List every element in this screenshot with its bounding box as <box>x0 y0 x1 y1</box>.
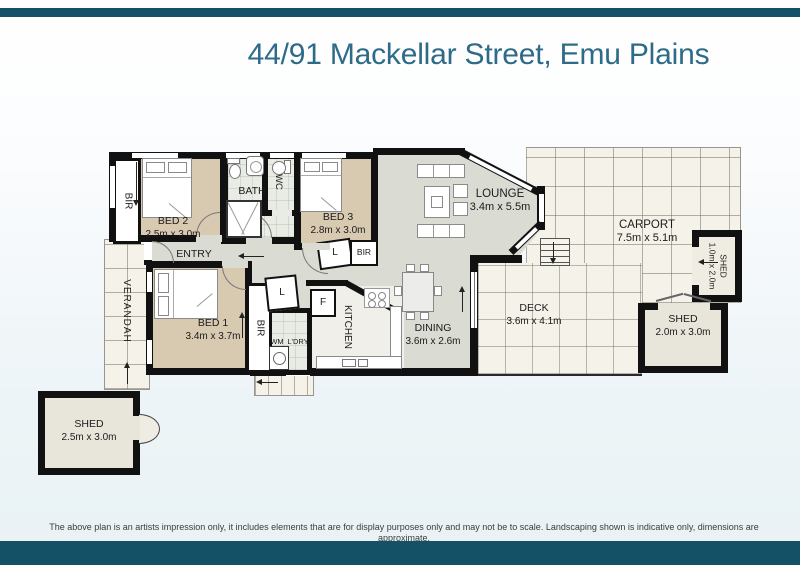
dining-label: DINING 3.6m x 2.6m <box>388 322 478 348</box>
room-name: BED 1 <box>168 317 258 330</box>
linen2-label: L <box>268 286 296 299</box>
burner <box>368 300 376 308</box>
shed-name: SHED <box>717 243 728 290</box>
shed-left-door-swing <box>139 414 160 444</box>
kitchen-label: KITCHEN <box>336 296 358 358</box>
burner <box>378 300 386 308</box>
closet-name: BIR <box>122 193 132 210</box>
shed-dims: 1.0m x 2.0m <box>706 243 717 290</box>
pillow <box>158 273 169 293</box>
room-name: ENTRY <box>164 248 224 261</box>
room-name: BED 3 <box>296 211 380 224</box>
deck-label: DECK 3.6m x 4.1m <box>490 302 578 328</box>
room-name: VERANDAH <box>121 279 131 343</box>
pillow <box>158 296 169 316</box>
linen-label: L <box>322 246 348 259</box>
bed-icon <box>300 158 342 212</box>
laundry-label: L'DRY <box>284 335 312 348</box>
chair-icon <box>420 264 429 272</box>
appliance-name: F <box>311 296 335 309</box>
room-dims: 3.4m x 3.7m <box>168 330 258 343</box>
room-dims: 3.6m x 4.1m <box>490 315 578 328</box>
room-name: LOUNGE <box>452 188 548 201</box>
shed-name: SHED <box>48 418 130 431</box>
bath-door-gap <box>246 237 272 244</box>
shed-right-label: SHED 2.0m x 3.0m <box>643 313 723 339</box>
chair-icon <box>394 286 402 296</box>
coffee-table-icon <box>424 186 450 218</box>
carport-label: CARPORT 7.5m x 5.1m <box>558 219 736 245</box>
sink-icon <box>342 359 356 367</box>
lounge-north-wall <box>373 148 465 155</box>
sofa-icon <box>417 164 465 178</box>
closet-name: L <box>268 286 296 299</box>
pillow <box>322 162 338 172</box>
room-name: DECK <box>490 302 578 315</box>
vanity-icon <box>246 156 264 176</box>
verandah-label: VERANDAH <box>114 262 138 360</box>
blanket-line <box>173 270 174 318</box>
bed2-label: BED 2 2.5m x 3.0m <box>128 215 218 241</box>
washing-machine-icon <box>269 346 289 370</box>
page-title: 44/91 Mackellar Street, Emu Plains <box>165 38 792 72</box>
closet-name: BIR <box>350 246 378 259</box>
bed-icon <box>154 269 218 319</box>
shed-right-door-gap <box>658 303 710 310</box>
entry-label: ENTRY <box>164 248 224 261</box>
kitchen-north-wall <box>306 280 348 286</box>
shed-dims: 2.0m x 3.0m <box>643 326 723 339</box>
closet-name: L <box>322 246 348 259</box>
blanket-line <box>301 175 341 176</box>
burner <box>368 292 376 300</box>
pillow <box>168 162 187 173</box>
room-name: CARPORT <box>558 219 736 232</box>
chair-icon <box>434 286 442 296</box>
fold-line <box>321 197 337 211</box>
room-name: BED 2 <box>128 215 218 228</box>
room-dims: 7.5m x 5.1m <box>558 232 736 245</box>
chair-icon <box>406 312 415 320</box>
shed-left-label: SHED 2.5m x 3.0m <box>48 418 130 444</box>
dining-table-icon <box>402 272 434 312</box>
floorplan-page: 44/91 Mackellar Street, Emu Plains The a… <box>0 0 800 565</box>
top-accent-bar <box>0 8 800 17</box>
sliding-door-track <box>474 272 475 328</box>
room-dims: 3.6m x 2.6m <box>388 335 478 348</box>
table-inner <box>431 196 443 208</box>
room-name: L'DRY <box>284 335 312 348</box>
fridge-label: F <box>311 296 335 309</box>
bottom-accent-bar <box>0 541 800 565</box>
shed-dims: 2.5m x 3.0m <box>48 431 130 444</box>
pillow <box>146 162 165 173</box>
wc-label: WC <box>266 168 290 196</box>
room-dims: 3.4m x 5.5m <box>452 201 548 214</box>
bed3-bir-label: BIR <box>350 246 378 259</box>
room-name: WC <box>273 174 283 190</box>
bed1-label: BED 1 3.4m x 3.7m <box>168 317 258 343</box>
bed1-bir-label: BIR <box>246 298 272 358</box>
basin <box>250 161 262 173</box>
shed-name: SHED <box>643 313 723 326</box>
drum <box>273 352 286 365</box>
room-dims: 2.8m x 3.0m <box>296 224 380 237</box>
shed-left-door-gap <box>133 416 140 440</box>
chair-icon <box>406 264 415 272</box>
window <box>270 152 294 159</box>
rear-porch-area <box>254 374 314 396</box>
bed-icon <box>142 158 192 218</box>
entry-door-gap <box>144 240 152 260</box>
sofa-icon <box>417 224 465 238</box>
lounge-label: LOUNGE 3.4m x 5.5m <box>452 188 548 214</box>
window <box>146 272 153 292</box>
room-name: DINING <box>388 322 478 335</box>
bed3-label: BED 3 2.8m x 3.0m <box>296 211 380 237</box>
window <box>146 340 153 364</box>
deck-sliding-door <box>470 272 478 328</box>
cooktop-icon <box>364 288 390 308</box>
chair-icon <box>420 312 429 320</box>
burner <box>378 292 386 300</box>
toilet-icon <box>229 164 241 179</box>
blanket-line <box>143 177 191 178</box>
pillow <box>304 162 320 172</box>
room-name: KITCHEN <box>342 305 352 349</box>
wc-door-gap <box>272 210 292 216</box>
fold-line <box>197 293 213 307</box>
closet-name: BIR <box>254 320 264 337</box>
sink-icon <box>358 359 368 367</box>
room-dims: 2.5m x 3.0m <box>128 228 218 241</box>
